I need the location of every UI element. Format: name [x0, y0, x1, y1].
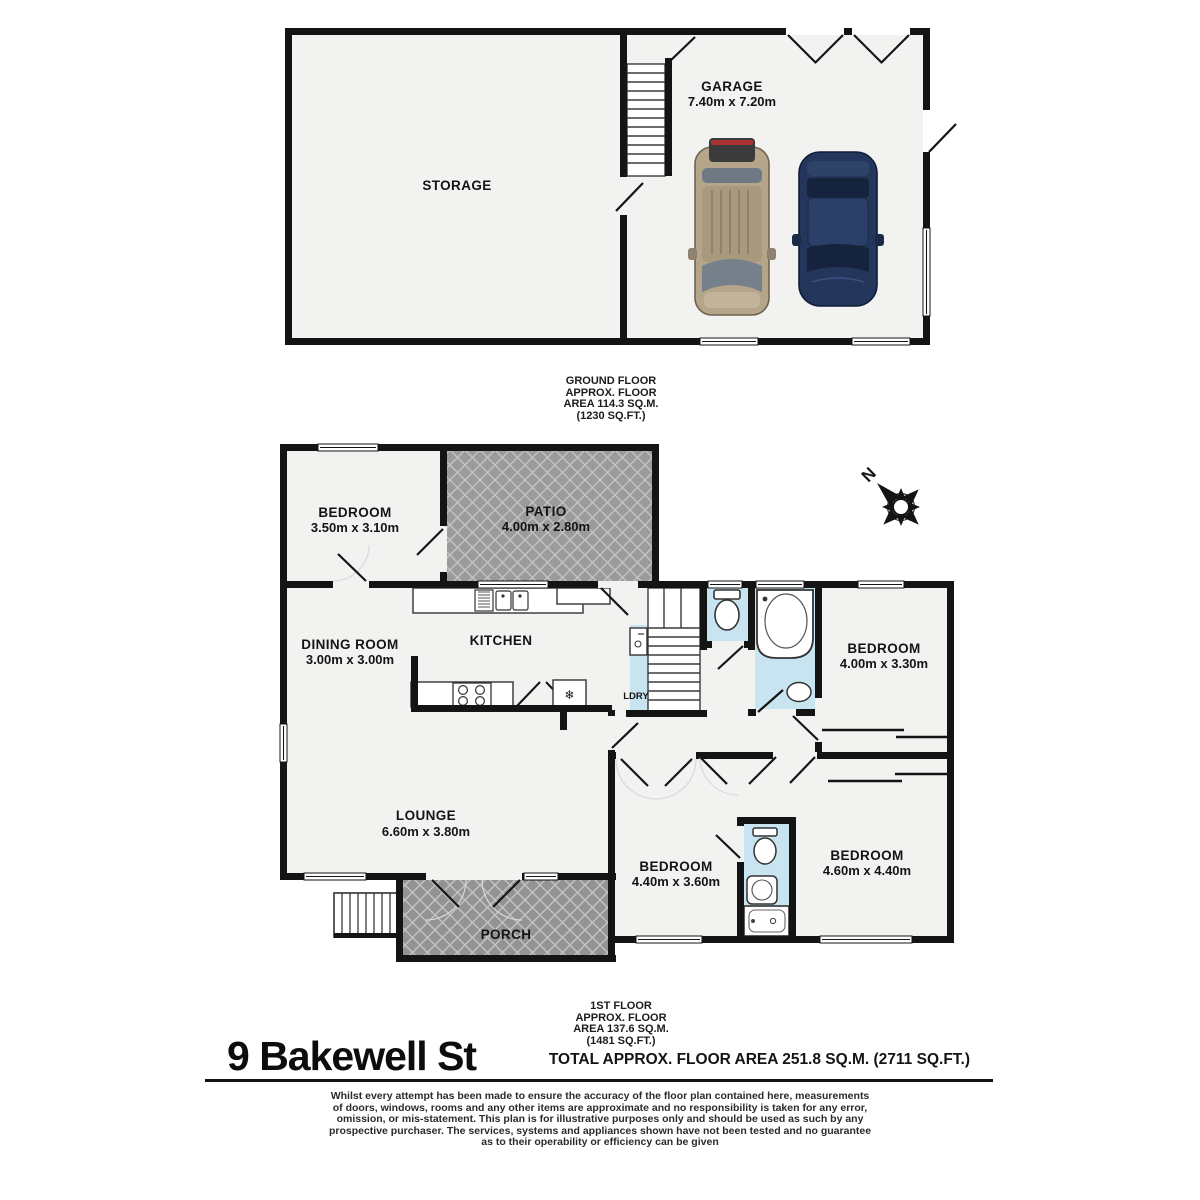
- room-dims-bedroom-bottom-right: 4.60m x 4.40m: [823, 863, 911, 878]
- room-dims-dining: 3.00m x 3.00m: [306, 652, 394, 667]
- ground-floor-area-line: (1230 SQ.FT.): [501, 411, 721, 423]
- room-label-bedroom-bottom-right: BEDROOM: [830, 848, 903, 863]
- room-label-storage: STORAGE: [422, 178, 491, 193]
- room-label-bedroom-bottom-left: BEDROOM: [639, 859, 712, 874]
- first-floor-area-line: 1ST FLOOR: [511, 1001, 731, 1013]
- sink-icon-bath: [787, 683, 811, 702]
- svg-text:❄: ❄: [564, 688, 574, 702]
- room-dims-lounge: 6.60m x 3.80m: [382, 824, 470, 839]
- sink-icon-ensuite: [747, 876, 777, 904]
- first-floor-plan: ❄: [280, 444, 954, 962]
- disclaimer: Whilst every attempt has been made to en…: [300, 1091, 900, 1149]
- floor-plan-page: STORAGE GARAGE 7.40m x 7.20m: [0, 0, 1200, 1200]
- room-dims-patio: 4.00m x 2.80m: [502, 519, 590, 534]
- room-label-lounge: LOUNGE: [396, 808, 456, 823]
- room-label-bedroom-right: BEDROOM: [847, 641, 920, 656]
- room-label-bedroom-top: BEDROOM: [318, 505, 391, 520]
- freezer-icon: ❄: [553, 680, 586, 708]
- ground-floor-plan: STORAGE GARAGE 7.40m x 7.20m: [285, 28, 956, 345]
- compass-north-label: N: [858, 464, 880, 486]
- ground-floor-area-label: GROUND FLOOR APPROX. FLOOR AREA 114.3 SQ…: [501, 376, 721, 422]
- toilet-icon-ensuite: [753, 828, 777, 864]
- shower-icon: [744, 906, 789, 936]
- car-icon-tan: [688, 138, 776, 315]
- room-dims-bedroom-top: 3.50m x 3.10m: [311, 520, 399, 535]
- room-dims-bedroom-bottom-left: 4.40m x 3.60m: [632, 874, 720, 889]
- stove-icon: [453, 683, 491, 707]
- disclaimer-line: Whilst every attempt has been made to en…: [300, 1091, 900, 1103]
- divider-line: [205, 1079, 993, 1082]
- room-label-laundry: LDRY: [623, 691, 649, 702]
- first-floor-area-line: (1481 SQ.FT.): [511, 1036, 731, 1048]
- room-dims-garage: 7.40m x 7.20m: [688, 94, 776, 109]
- compass-icon: N: [843, 449, 939, 545]
- room-label-patio: PATIO: [525, 504, 566, 519]
- stairs-icon-first: [648, 588, 700, 712]
- total-area-label: TOTAL APPROX. FLOOR AREA 251.8 SQ.M. (27…: [520, 1051, 970, 1069]
- room-dims-bedroom-right: 4.00m x 3.30m: [840, 656, 928, 671]
- porch-steps: [334, 893, 398, 938]
- room-label-dining: DINING ROOM: [301, 637, 398, 652]
- stairs-icon-ground: [627, 64, 665, 176]
- car-icon-blue: [792, 152, 884, 306]
- page-title: 9 Bakewell St: [227, 1033, 476, 1080]
- room-label-kitchen: KITCHEN: [470, 633, 533, 648]
- toilet-icon-wc: [714, 590, 740, 630]
- first-floor-area-label: 1ST FLOOR APPROX. FLOOR AREA 137.6 SQ.M.…: [511, 1001, 731, 1047]
- disclaimer-line: as to their operability or efficiency ca…: [300, 1137, 900, 1149]
- room-label-garage: GARAGE: [701, 79, 763, 94]
- porch-area: [401, 879, 612, 958]
- washer-icon: [630, 628, 647, 655]
- kitchen-sink-icon: [475, 590, 528, 611]
- ground-floor-area-line: GROUND FLOOR: [501, 376, 721, 388]
- room-label-porch: PORCH: [481, 927, 532, 942]
- bathtub-icon: [757, 590, 813, 658]
